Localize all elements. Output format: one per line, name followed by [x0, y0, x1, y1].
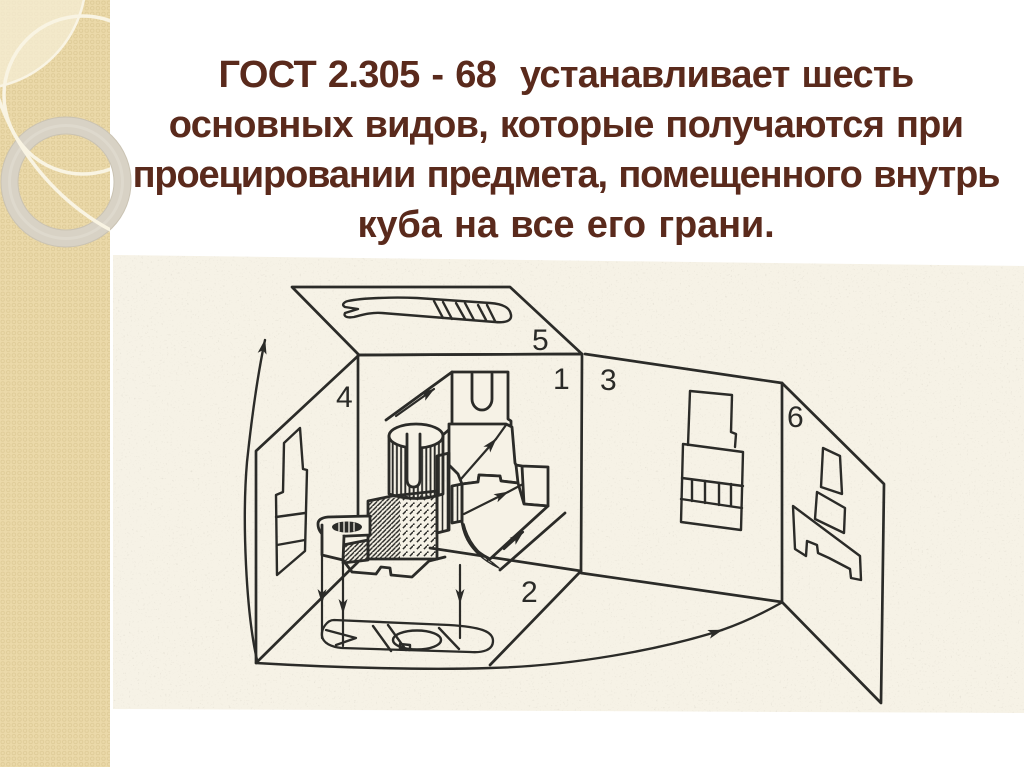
svg-text:5: 5 [532, 324, 549, 357]
svg-text:2: 2 [521, 576, 538, 609]
svg-text:4: 4 [336, 381, 353, 414]
svg-text:1: 1 [553, 363, 570, 396]
svg-text:6: 6 [787, 401, 804, 434]
svg-text:3: 3 [600, 364, 617, 397]
